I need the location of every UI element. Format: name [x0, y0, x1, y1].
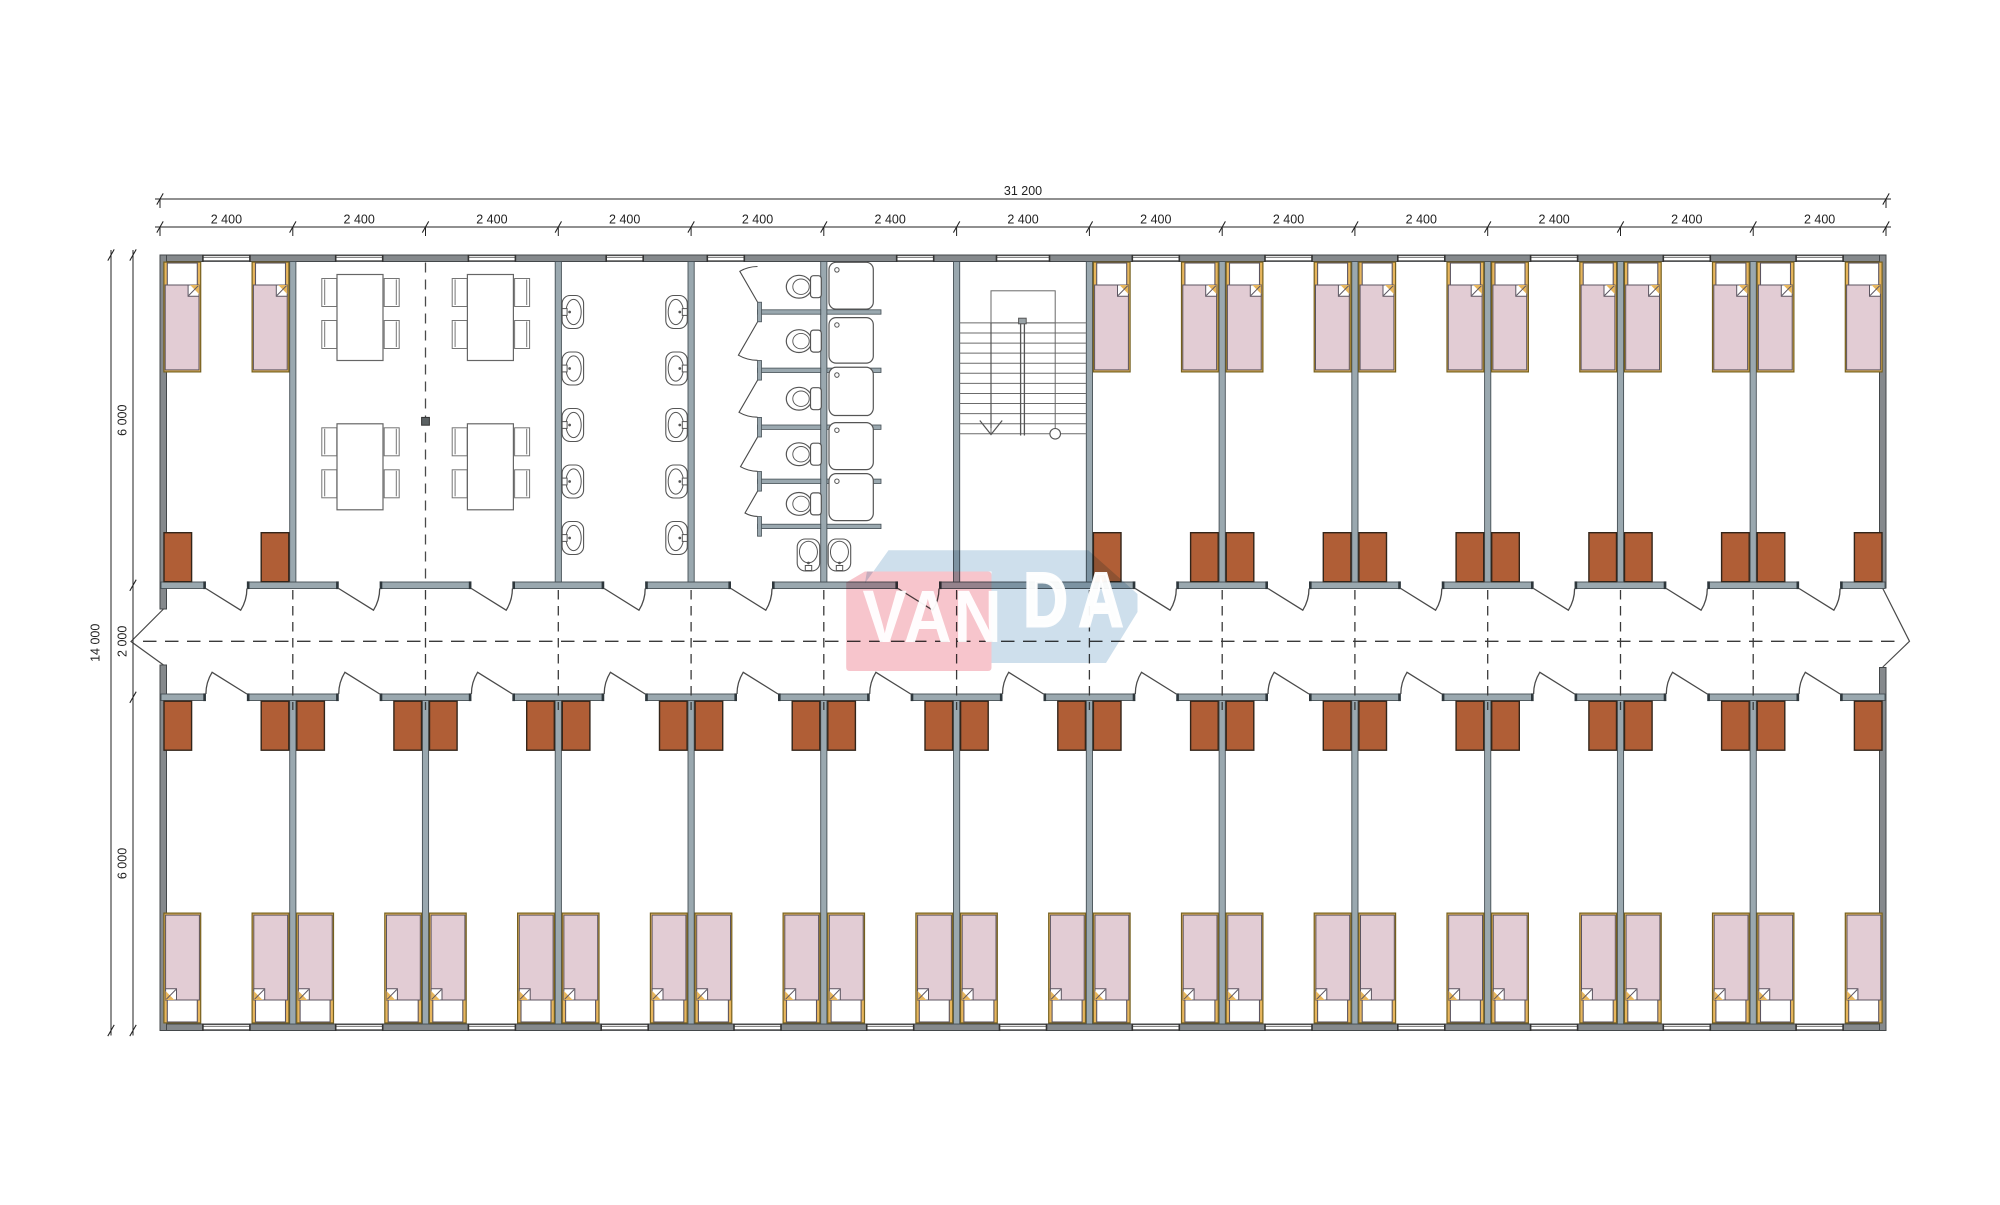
- svg-text:VAN: VAN: [863, 575, 1004, 658]
- svg-text:2 400: 2 400: [476, 213, 507, 227]
- svg-text:2 400: 2 400: [742, 213, 773, 227]
- svg-text:2 400: 2 400: [344, 213, 375, 227]
- svg-text:2 400: 2 400: [1406, 213, 1437, 227]
- svg-text:2 400: 2 400: [1007, 213, 1038, 227]
- svg-text:6 000: 6 000: [116, 405, 130, 436]
- svg-text:6 000: 6 000: [116, 848, 130, 879]
- svg-text:31 200: 31 200: [1004, 184, 1042, 198]
- svg-text:2 400: 2 400: [1538, 213, 1569, 227]
- svg-text:2 000: 2 000: [116, 626, 130, 657]
- svg-text:2 400: 2 400: [211, 213, 242, 227]
- svg-text:2 400: 2 400: [1671, 213, 1702, 227]
- svg-text:2 400: 2 400: [1273, 213, 1304, 227]
- svg-text:14 000: 14 000: [89, 624, 103, 662]
- svg-text:2 400: 2 400: [1140, 213, 1171, 227]
- svg-text:2 400: 2 400: [1804, 213, 1835, 227]
- svg-text:DA: DA: [1024, 556, 1135, 642]
- svg-text:2 400: 2 400: [609, 213, 640, 227]
- svg-text:2 400: 2 400: [875, 213, 906, 227]
